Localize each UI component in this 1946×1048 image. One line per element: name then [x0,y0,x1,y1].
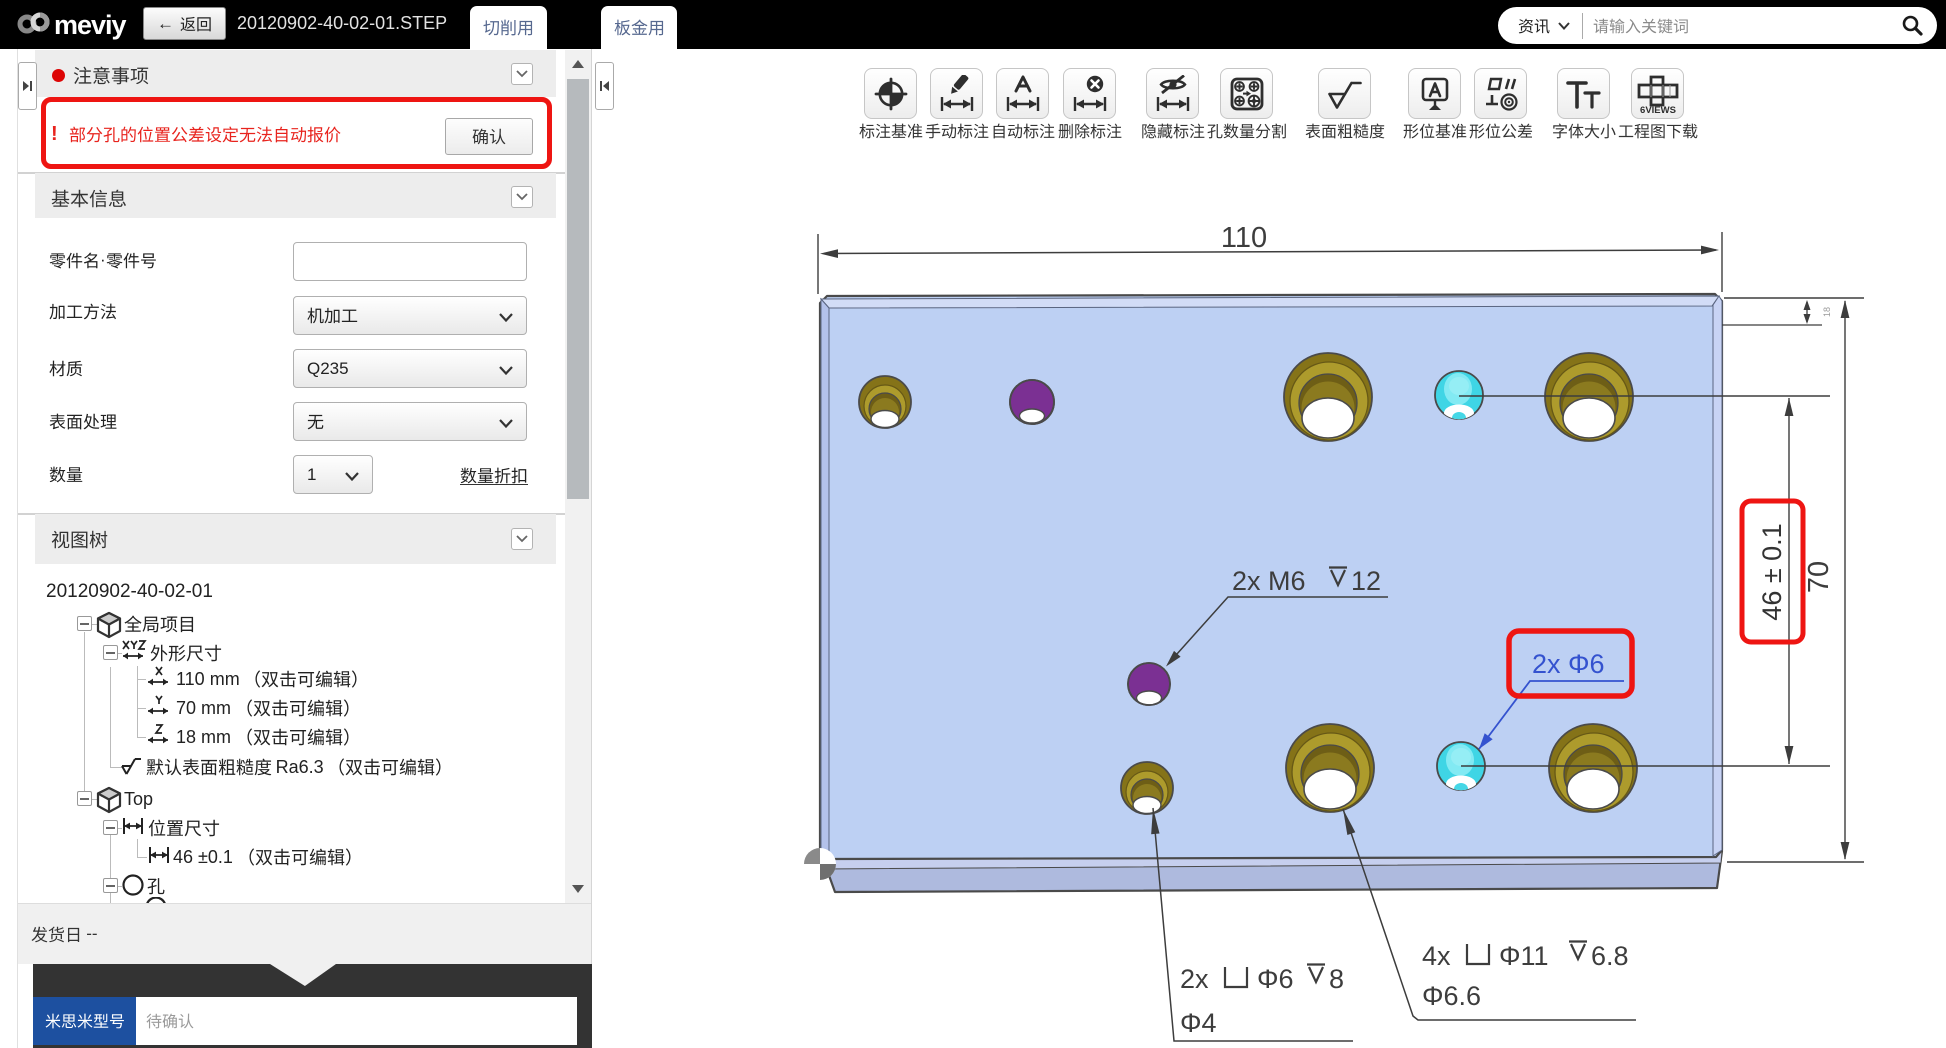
svg-text:Φ4: Φ4 [1180,1008,1217,1038]
svg-text:110: 110 [1221,222,1267,254]
svg-text:4x: 4x [1422,941,1451,971]
svg-text:Φ6.6: Φ6.6 [1422,981,1481,1011]
svg-text:6VIEWS: 6VIEWS [1640,105,1676,114]
svg-text:8: 8 [1329,964,1344,994]
svg-text:Φ11: Φ11 [1499,941,1549,971]
svg-text:2x: 2x [1180,964,1209,994]
svg-text:6.8: 6.8 [1591,941,1629,971]
svg-text:12: 12 [1351,566,1381,596]
svg-text:18: 18 [1822,307,1832,317]
svg-text:46 ± 0.1: 46 ± 0.1 [1757,523,1787,620]
svg-text:70: 70 [1803,561,1835,593]
svg-text:meviy: meviy [54,10,127,40]
svg-text:2x M6: 2x M6 [1232,566,1306,596]
svg-text:Φ6: Φ6 [1257,964,1294,994]
svg-text:2x Φ6: 2x Φ6 [1532,649,1605,679]
